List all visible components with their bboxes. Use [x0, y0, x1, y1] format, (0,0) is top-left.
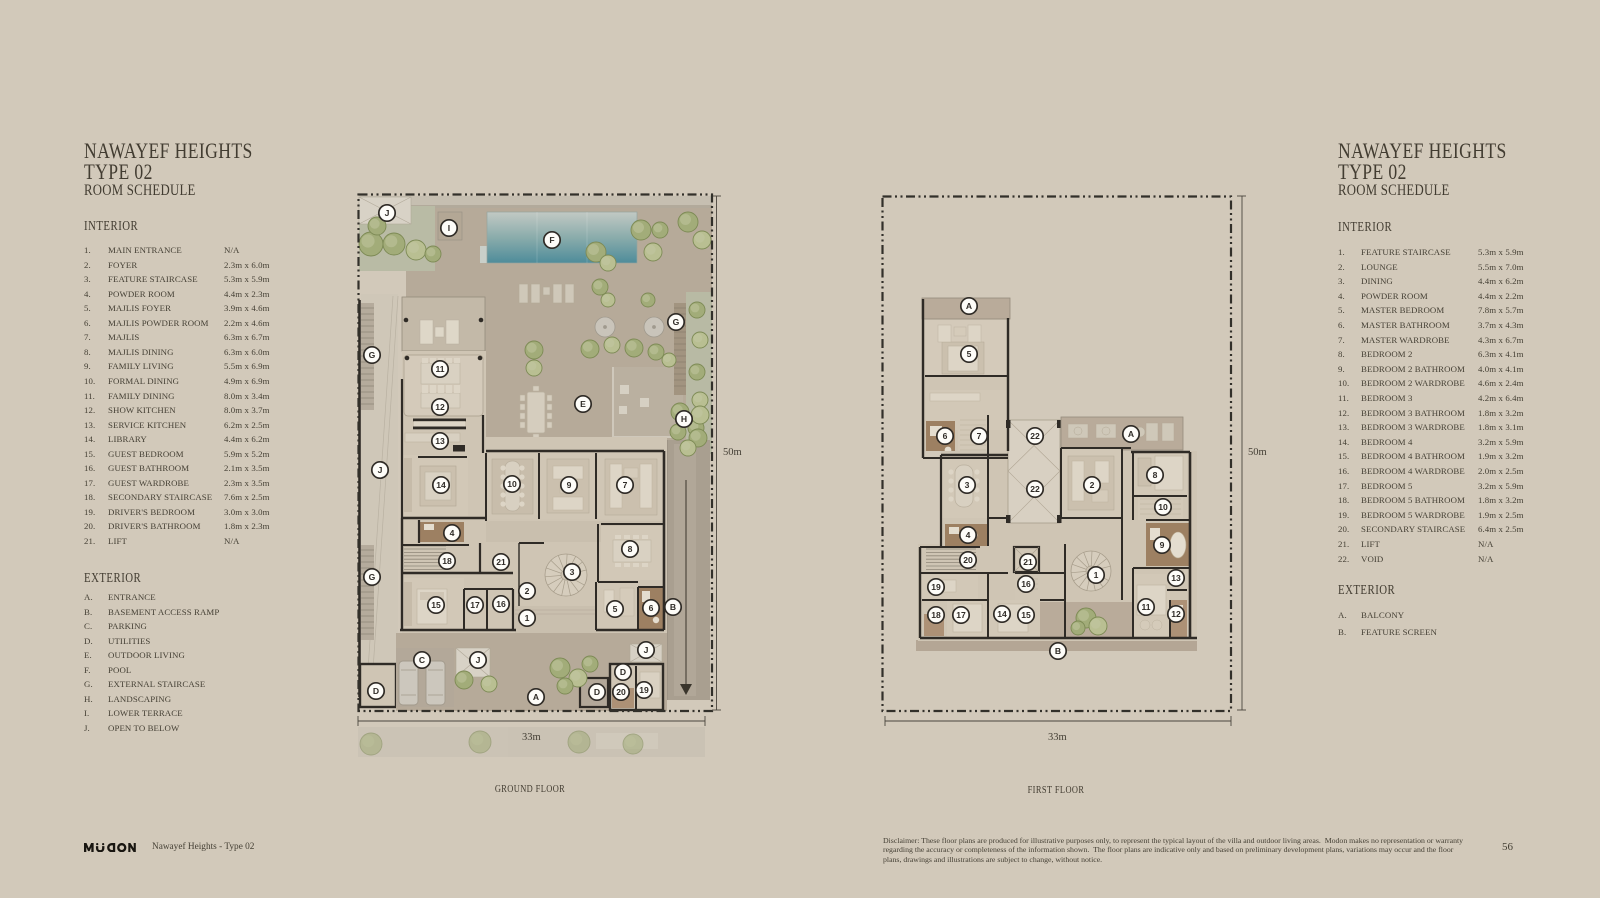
svg-text:16: 16 — [496, 599, 506, 609]
svg-text:1: 1 — [1094, 570, 1099, 580]
svg-text:22: 22 — [1030, 431, 1040, 441]
svg-text:13: 13 — [435, 436, 445, 446]
svg-text:I: I — [448, 223, 450, 233]
svg-text:50m: 50m — [723, 447, 742, 458]
svg-text:F: F — [549, 235, 554, 245]
svg-text:D: D — [594, 687, 600, 697]
svg-text:7: 7 — [977, 431, 982, 441]
svg-text:J: J — [476, 655, 481, 665]
svg-text:2: 2 — [1090, 480, 1095, 490]
svg-text:H: H — [681, 414, 687, 424]
svg-text:21: 21 — [1023, 557, 1033, 567]
svg-text:4: 4 — [450, 528, 455, 538]
svg-text:20: 20 — [963, 555, 973, 565]
svg-text:10: 10 — [507, 479, 517, 489]
svg-text:A: A — [533, 692, 539, 702]
svg-text:3: 3 — [570, 567, 575, 577]
svg-text:7: 7 — [623, 480, 628, 490]
svg-text:14: 14 — [997, 609, 1007, 619]
svg-text:D: D — [620, 667, 626, 677]
svg-text:J: J — [378, 465, 383, 475]
svg-text:4: 4 — [966, 530, 971, 540]
svg-text:B: B — [670, 602, 676, 612]
svg-text:G: G — [369, 350, 376, 360]
svg-text:15: 15 — [431, 600, 441, 610]
svg-text:16: 16 — [1021, 579, 1031, 589]
svg-text:A: A — [966, 301, 972, 311]
svg-text:E: E — [580, 399, 586, 409]
svg-text:17: 17 — [470, 600, 480, 610]
svg-text:3: 3 — [965, 480, 970, 490]
svg-text:9: 9 — [1160, 540, 1165, 550]
svg-text:2: 2 — [525, 586, 530, 596]
svg-text:8: 8 — [628, 544, 633, 554]
svg-text:G: G — [673, 317, 680, 327]
svg-text:J: J — [644, 645, 649, 655]
svg-text:B: B — [1055, 646, 1061, 656]
svg-text:J: J — [385, 208, 390, 218]
svg-text:12: 12 — [435, 402, 445, 412]
svg-text:18: 18 — [442, 556, 452, 566]
svg-text:11: 11 — [1141, 602, 1150, 612]
svg-text:20: 20 — [616, 687, 626, 697]
svg-text:5: 5 — [613, 604, 618, 614]
svg-text:33m: 33m — [522, 732, 541, 743]
svg-text:33m: 33m — [1048, 732, 1067, 743]
svg-text:12: 12 — [1171, 609, 1181, 619]
svg-text:17: 17 — [956, 610, 966, 620]
svg-text:G: G — [369, 572, 376, 582]
svg-text:18: 18 — [931, 610, 941, 620]
svg-text:19: 19 — [639, 685, 649, 695]
svg-text:A: A — [1128, 429, 1134, 439]
svg-text:9: 9 — [567, 480, 572, 490]
svg-text:13: 13 — [1171, 573, 1181, 583]
svg-text:C: C — [419, 655, 425, 665]
svg-text:14: 14 — [436, 480, 446, 490]
svg-text:15: 15 — [1021, 610, 1031, 620]
svg-text:8: 8 — [1153, 470, 1158, 480]
svg-text:6: 6 — [649, 603, 654, 613]
svg-text:D: D — [373, 686, 379, 696]
svg-text:6: 6 — [943, 431, 948, 441]
svg-text:1: 1 — [525, 613, 530, 623]
svg-text:5: 5 — [967, 349, 972, 359]
svg-text:11: 11 — [435, 364, 444, 374]
svg-text:21: 21 — [496, 557, 506, 567]
svg-text:19: 19 — [931, 582, 941, 592]
svg-text:10: 10 — [1158, 502, 1168, 512]
svg-text:22: 22 — [1030, 484, 1040, 494]
svg-text:50m: 50m — [1248, 447, 1267, 458]
